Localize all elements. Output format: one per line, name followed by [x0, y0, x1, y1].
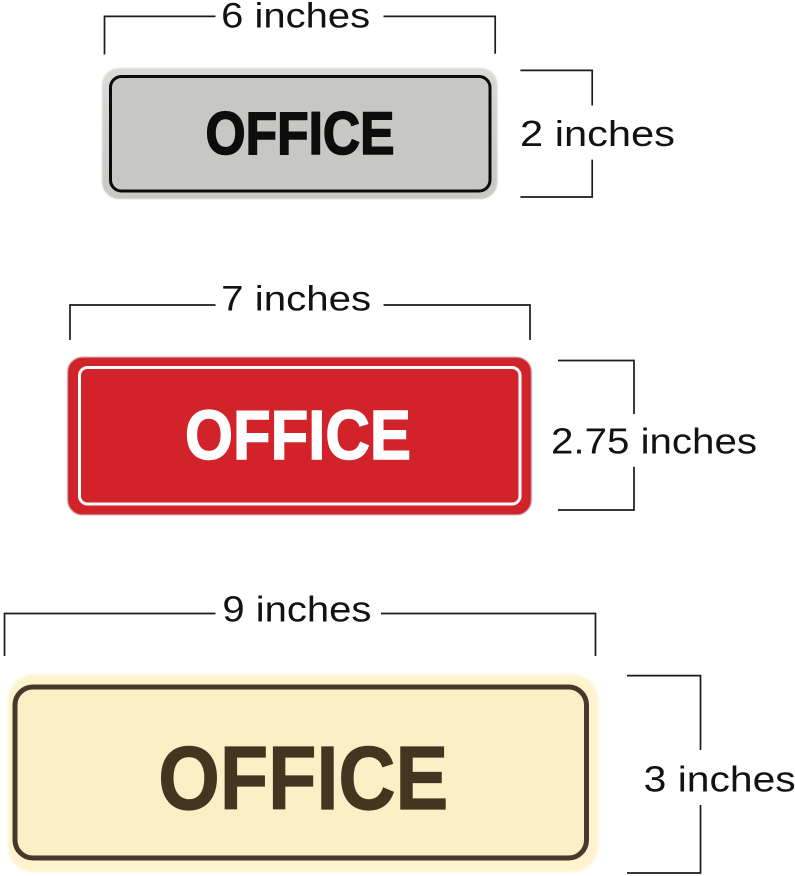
svg-text:2 inches: 2 inches [520, 113, 675, 154]
svg-text:2.75 inches: 2.75 inches [551, 421, 757, 462]
svg-text:6 inches: 6 inches [221, 0, 370, 36]
svg-text:3 inches: 3 inches [644, 759, 795, 800]
svg-text:9 inches: 9 inches [222, 589, 371, 630]
svg-text:OFFICE: OFFICE [158, 729, 448, 829]
svg-text:OFFICE: OFFICE [185, 396, 411, 474]
svg-text:7 inches: 7 inches [221, 280, 371, 319]
svg-text:OFFICE: OFFICE [206, 100, 395, 167]
